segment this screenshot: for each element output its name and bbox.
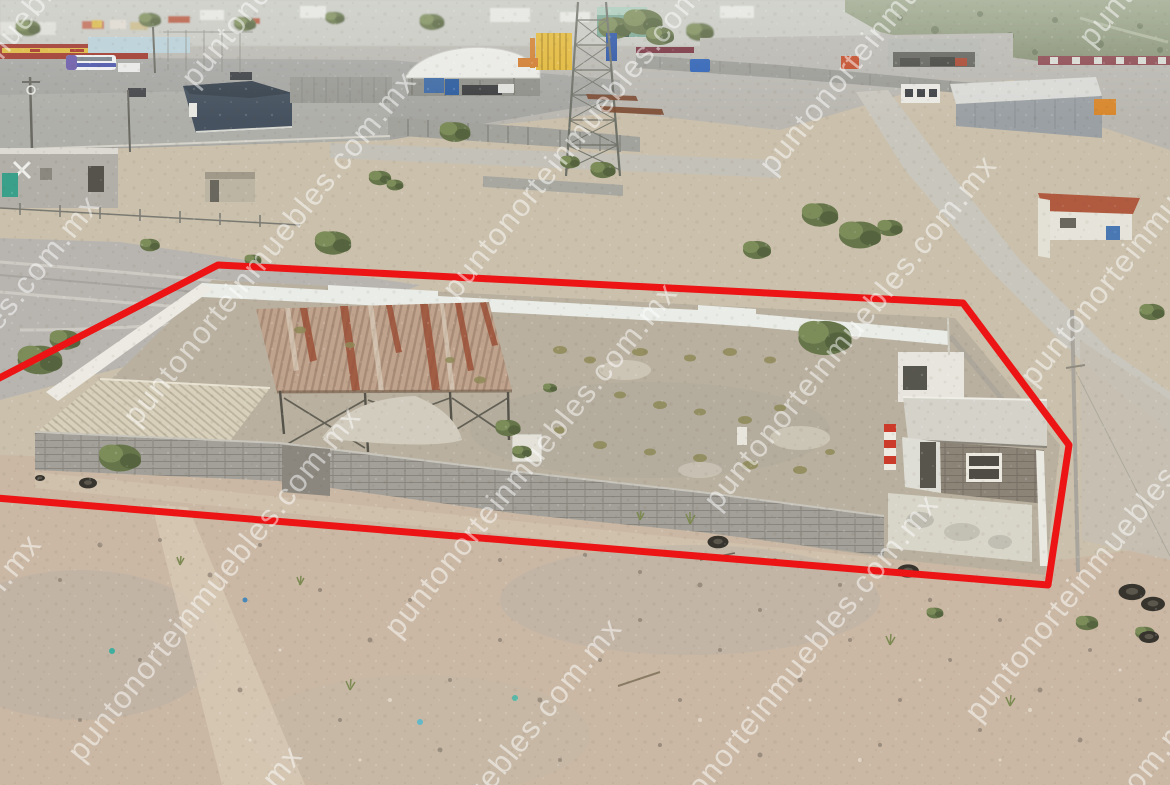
photo-canvas <box>0 0 1170 785</box>
aerial-photo: puntonorteinmuebles.com.mxpuntonorteinmu… <box>0 0 1170 785</box>
haze-overlay <box>0 0 1170 120</box>
